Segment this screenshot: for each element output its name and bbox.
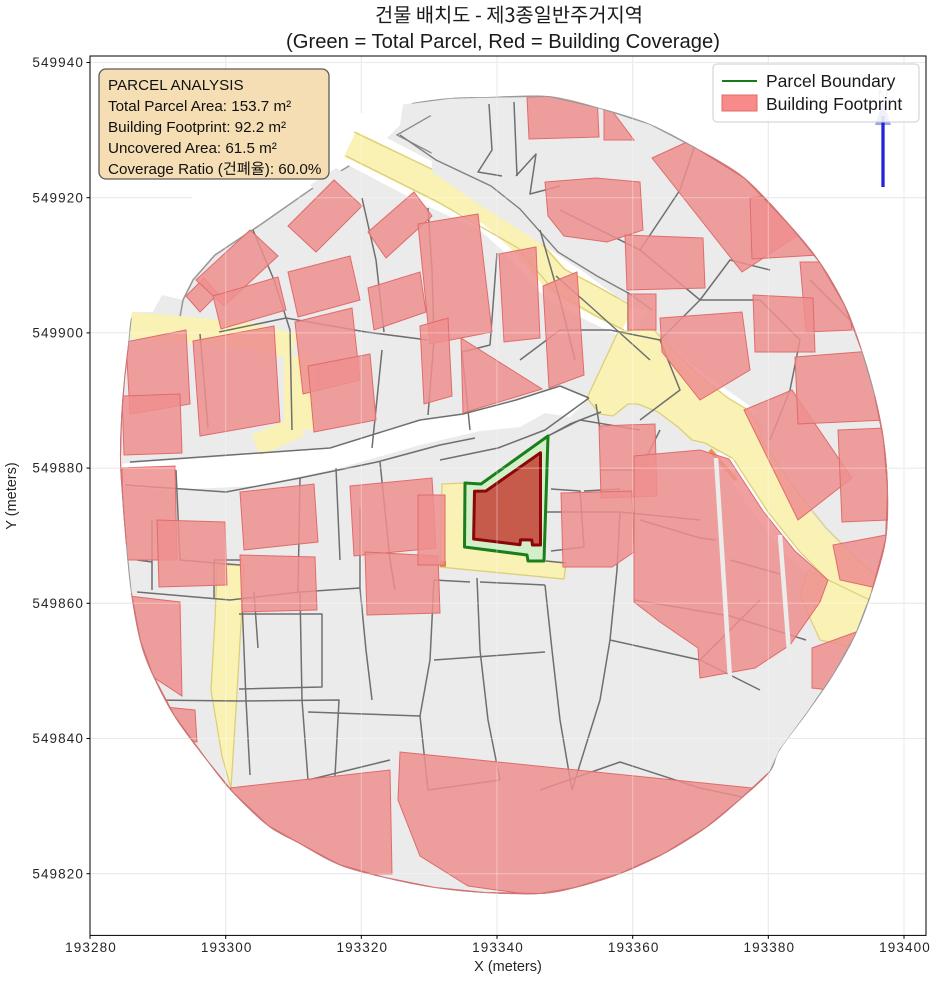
svg-text:Parcel Boundary: Parcel Boundary [766, 71, 896, 91]
svg-text:549840: 549840 [32, 731, 84, 746]
svg-text:Total Parcel Area: 153.7 m²: Total Parcel Area: 153.7 m² [108, 98, 291, 115]
svg-text:PARCEL ANALYSIS: PARCEL ANALYSIS [108, 77, 244, 94]
svg-text:Y (meters): Y (meters) [4, 462, 20, 529]
svg-text:549940: 549940 [32, 55, 84, 70]
svg-text:193380: 193380 [743, 940, 795, 955]
svg-text:): 60.0%: ): 60.0% [265, 161, 322, 178]
svg-text:549920: 549920 [32, 190, 84, 205]
svg-text:193320: 193320 [336, 940, 388, 955]
svg-text:X (meters): X (meters) [474, 959, 542, 975]
svg-text:193300: 193300 [201, 940, 253, 955]
svg-text:Building Footprint: Building Footprint [766, 94, 902, 114]
svg-text:549900: 549900 [32, 326, 84, 341]
svg-text:549820: 549820 [32, 866, 84, 881]
svg-text:549860: 549860 [32, 596, 84, 611]
svg-text:193360: 193360 [608, 940, 660, 955]
svg-text:193280: 193280 [65, 940, 117, 955]
svg-text:Coverage Ratio (: Coverage Ratio ( [108, 161, 223, 178]
svg-text:193340: 193340 [472, 940, 524, 955]
svg-text:549880: 549880 [32, 461, 84, 476]
svg-text:(Green = Total Parcel, Red = B: (Green = Total Parcel, Red = Building Co… [286, 31, 720, 53]
svg-text:193400: 193400 [879, 940, 931, 955]
svg-text:Uncovered Area: 61.5 m²: Uncovered Area: 61.5 m² [108, 140, 277, 157]
svg-text:Building Footprint: 92.2 m²: Building Footprint: 92.2 m² [108, 119, 286, 136]
